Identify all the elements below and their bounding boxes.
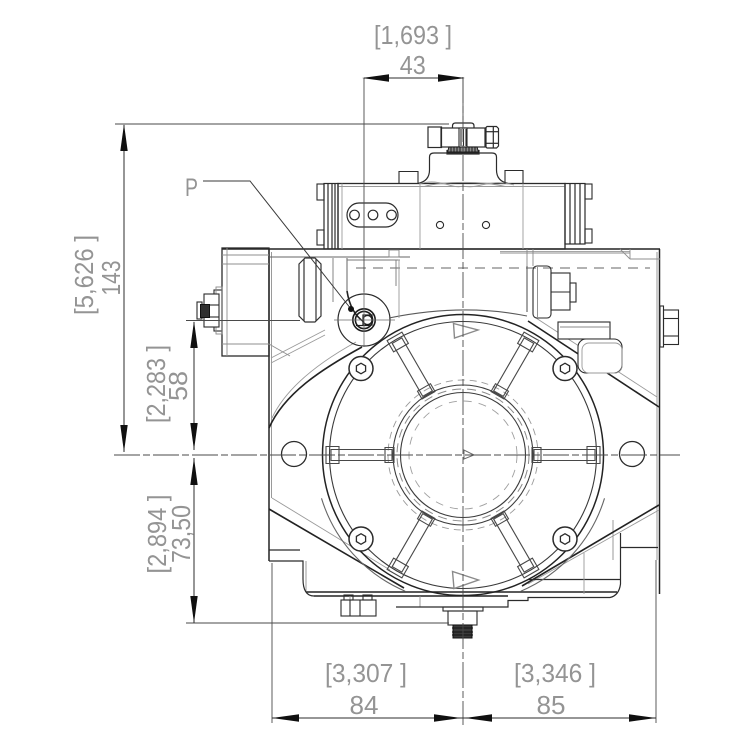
svg-text:58: 58: [163, 371, 193, 401]
svg-text:[1,693 ]: [1,693 ]: [374, 20, 452, 50]
svg-text:[5,626 ]: [5,626 ]: [69, 235, 99, 315]
svg-text:84: 84: [350, 690, 379, 720]
svg-text:43: 43: [400, 50, 426, 80]
svg-text:[3,346 ]: [3,346 ]: [514, 658, 596, 688]
svg-text:P: P: [185, 174, 198, 202]
svg-text:73,50: 73,50: [166, 505, 196, 563]
svg-text:143: 143: [96, 261, 126, 296]
svg-text:85: 85: [537, 690, 566, 720]
svg-text:[3,307 ]: [3,307 ]: [325, 658, 407, 688]
